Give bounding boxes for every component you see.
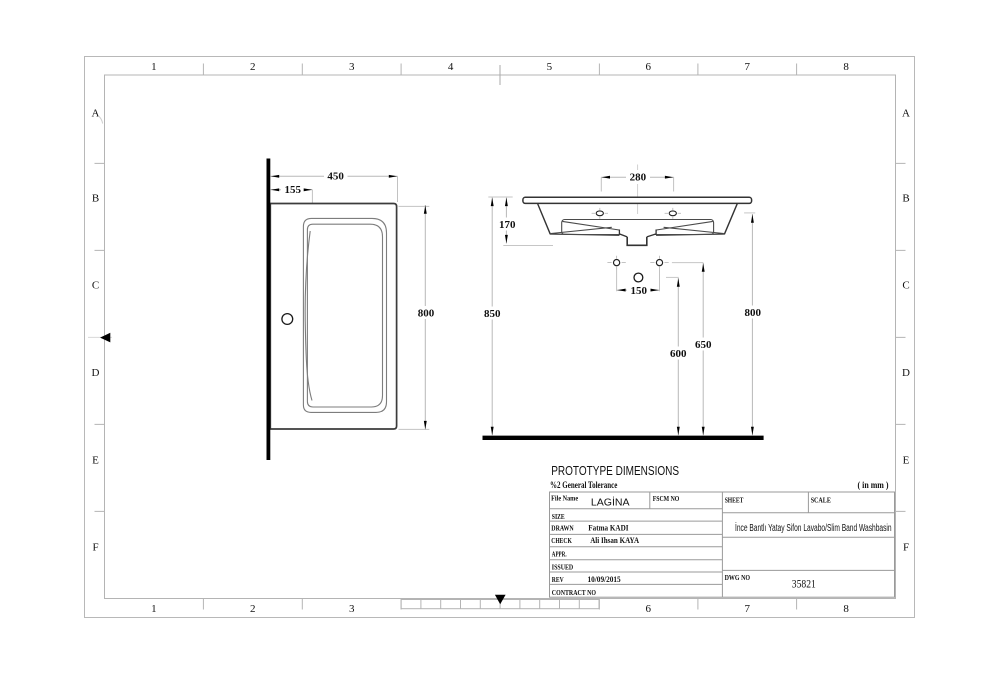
svg-text:E: E — [903, 455, 910, 467]
svg-text:F: F — [92, 542, 98, 554]
svg-text:CONTRACT NO: CONTRACT NO — [552, 589, 597, 597]
svg-text:650: 650 — [695, 339, 712, 351]
svg-text:6: 6 — [646, 603, 652, 615]
svg-text:ISSUED: ISSUED — [552, 564, 573, 572]
svg-text:B: B — [92, 193, 99, 205]
svg-text:850: 850 — [484, 308, 501, 320]
svg-text:800: 800 — [745, 307, 762, 319]
svg-text:%2 General Tolerance: %2 General Tolerance — [550, 481, 617, 491]
svg-text:4: 4 — [448, 61, 454, 73]
svg-text:LAGİNA: LAGİNA — [591, 495, 630, 508]
svg-text:PROTOTYPE DIMENSIONS: PROTOTYPE DIMENSIONS — [551, 463, 679, 478]
svg-text:2: 2 — [250, 61, 256, 73]
svg-text:1: 1 — [151, 61, 157, 73]
svg-text:REV: REV — [552, 576, 565, 584]
svg-text:800: 800 — [418, 307, 435, 319]
svg-text:155: 155 — [285, 184, 302, 196]
svg-text:A: A — [92, 108, 100, 120]
svg-text:SHEET: SHEET — [725, 496, 744, 504]
svg-text:10/09/2015: 10/09/2015 — [588, 575, 621, 584]
svg-text:SIZE: SIZE — [552, 513, 565, 521]
svg-text:İnce Bantlı Yatay Sifon Lavabo: İnce Bantlı Yatay Sifon Lavabo/Slim Band… — [735, 523, 892, 534]
svg-text:1: 1 — [151, 603, 157, 615]
svg-text:5: 5 — [547, 61, 553, 73]
svg-text:File Name: File Name — [551, 494, 578, 502]
svg-text:8: 8 — [843, 603, 849, 615]
svg-text:Ali Ihsan KAYA: Ali Ihsan KAYA — [590, 536, 639, 545]
svg-text:6: 6 — [646, 61, 652, 73]
svg-text:280: 280 — [630, 172, 647, 184]
svg-text:2: 2 — [250, 603, 256, 615]
svg-text:B: B — [902, 193, 909, 205]
svg-text:FSCM NO: FSCM NO — [653, 495, 680, 503]
svg-text:3: 3 — [349, 61, 355, 73]
svg-text:150: 150 — [631, 285, 648, 297]
svg-text:D: D — [92, 367, 100, 379]
svg-text:8: 8 — [843, 61, 849, 73]
svg-text:35821: 35821 — [792, 577, 816, 591]
svg-text:Fatma KADI: Fatma KADI — [588, 524, 628, 533]
svg-text:3: 3 — [349, 603, 355, 615]
svg-text:( in mm ): ( in mm ) — [858, 480, 889, 491]
svg-text:F: F — [903, 542, 909, 554]
svg-text:450: 450 — [327, 171, 344, 183]
svg-text:DRAWN: DRAWN — [551, 525, 574, 533]
svg-text:DWG NO: DWG NO — [725, 574, 751, 582]
svg-text:C: C — [92, 280, 99, 292]
svg-text:D: D — [902, 367, 910, 379]
svg-text:600: 600 — [670, 348, 687, 360]
svg-text:7: 7 — [744, 61, 750, 73]
svg-text:SCALE: SCALE — [811, 496, 831, 504]
svg-text:C: C — [902, 280, 909, 292]
svg-text:E: E — [92, 455, 99, 467]
svg-text:A: A — [902, 108, 910, 120]
svg-text:CHECK: CHECK — [551, 537, 572, 545]
svg-text:170: 170 — [499, 219, 516, 231]
svg-text:7: 7 — [744, 603, 750, 615]
svg-text:APPR.: APPR. — [552, 551, 567, 559]
